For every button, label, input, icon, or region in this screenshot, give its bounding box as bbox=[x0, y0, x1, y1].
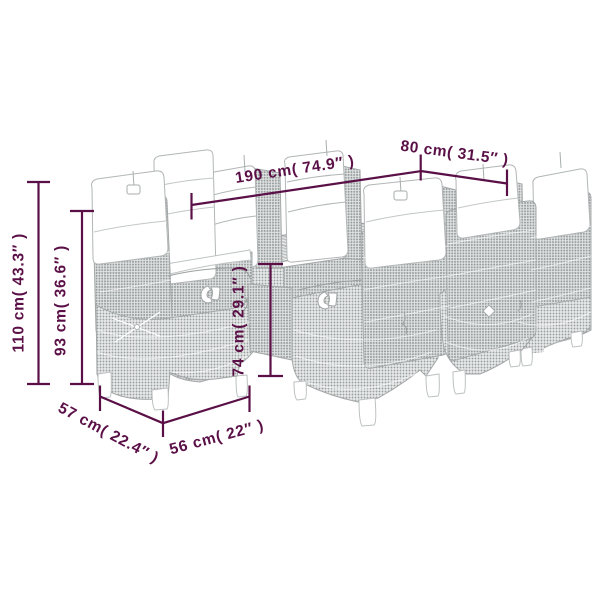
svg-text:110 cm( 43.3″ ): 110 cm( 43.3″ ) bbox=[11, 233, 28, 353]
svg-text:93 cm( 36.6″ ): 93 cm( 36.6″ ) bbox=[53, 245, 70, 356]
svg-text:74 cm( 29.1″ ): 74 cm( 29.1″ ) bbox=[231, 266, 248, 377]
